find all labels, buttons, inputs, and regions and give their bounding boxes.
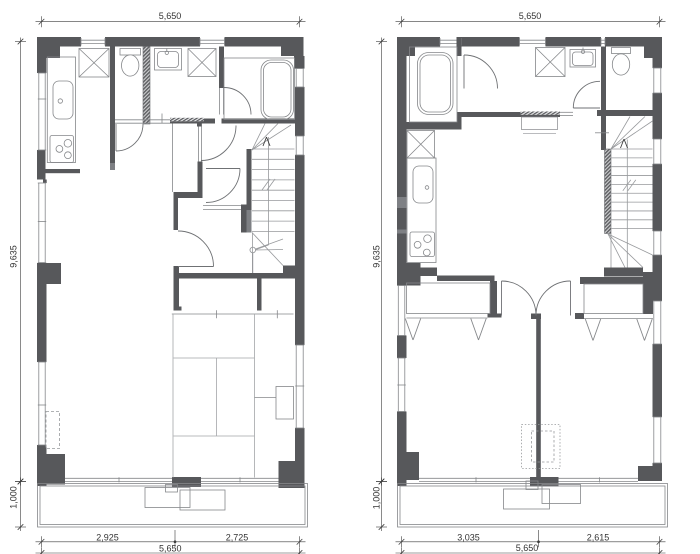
svg-text:1,000: 1,000: [372, 487, 382, 510]
svg-text:9,635: 9,635: [9, 245, 19, 268]
svg-text:9,635: 9,635: [372, 245, 382, 268]
svg-text:3,035: 3,035: [457, 532, 480, 542]
svg-text:2,615: 2,615: [587, 532, 610, 542]
svg-text:5,650: 5,650: [516, 543, 539, 553]
svg-text:2,925: 2,925: [96, 532, 119, 542]
svg-text:2,725: 2,725: [226, 532, 249, 542]
svg-text:5,650: 5,650: [159, 543, 182, 553]
svg-text:1,000: 1,000: [9, 486, 19, 509]
svg-text:5,650: 5,650: [519, 11, 542, 21]
svg-text:5,650: 5,650: [159, 11, 182, 21]
